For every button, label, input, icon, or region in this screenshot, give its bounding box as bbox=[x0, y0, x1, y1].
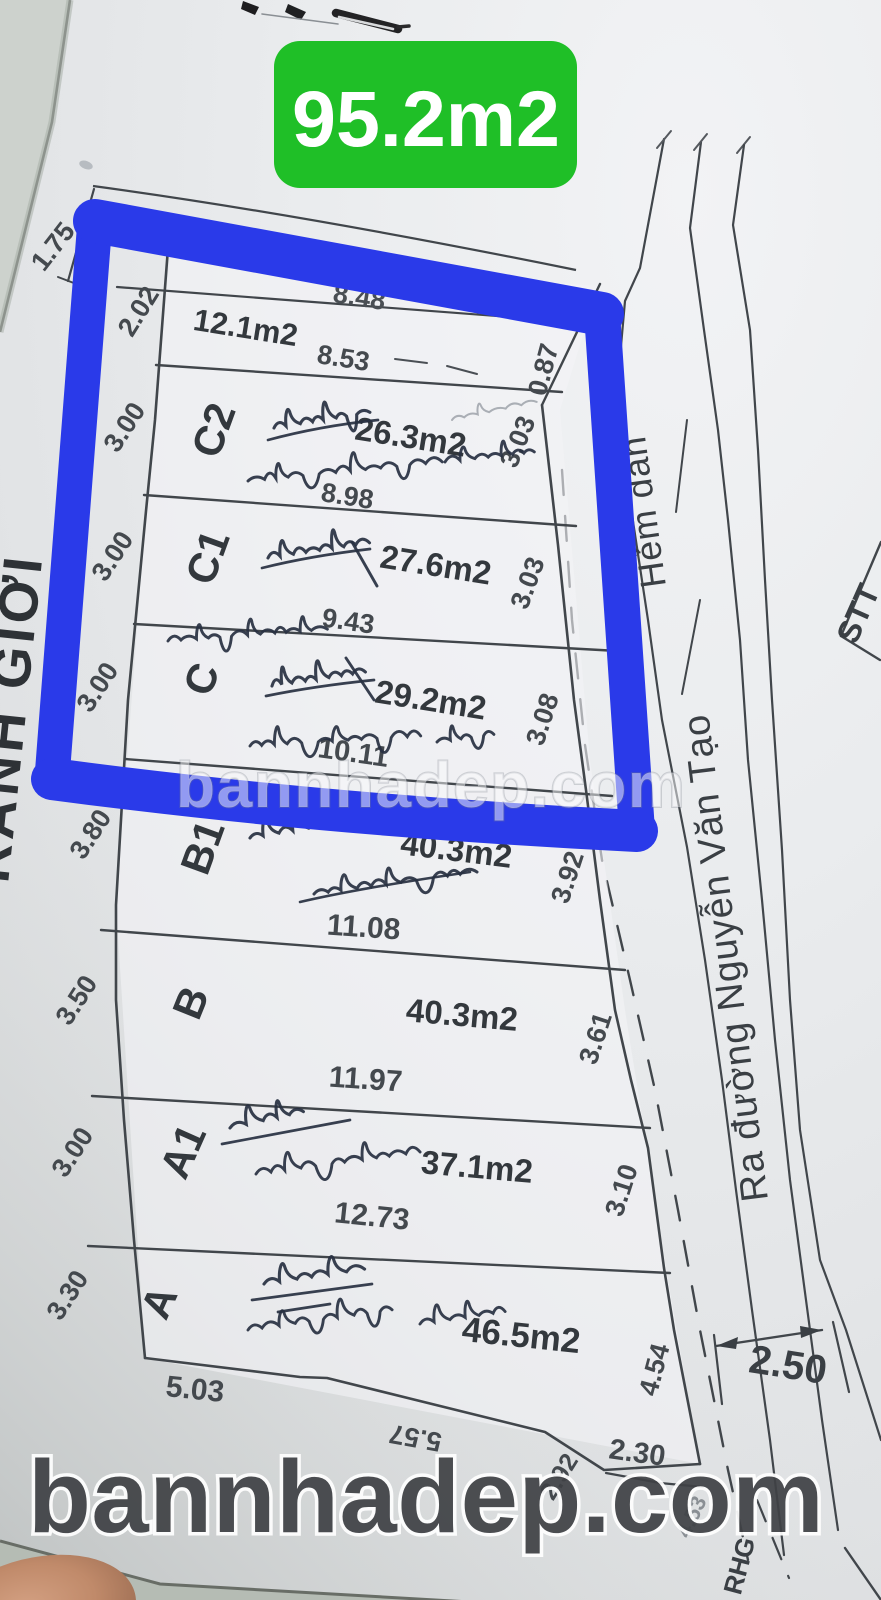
svg-text:95.2m2: 95.2m2 bbox=[292, 74, 560, 163]
svg-text:11.08: 11.08 bbox=[326, 909, 402, 947]
svg-text:bannhadep.com: bannhadep.com bbox=[28, 1439, 824, 1554]
svg-text:5.03: 5.03 bbox=[164, 1370, 226, 1409]
svg-text:11.97: 11.97 bbox=[328, 1061, 404, 1099]
svg-text:bannhadep.com: bannhadep.com bbox=[176, 749, 686, 821]
